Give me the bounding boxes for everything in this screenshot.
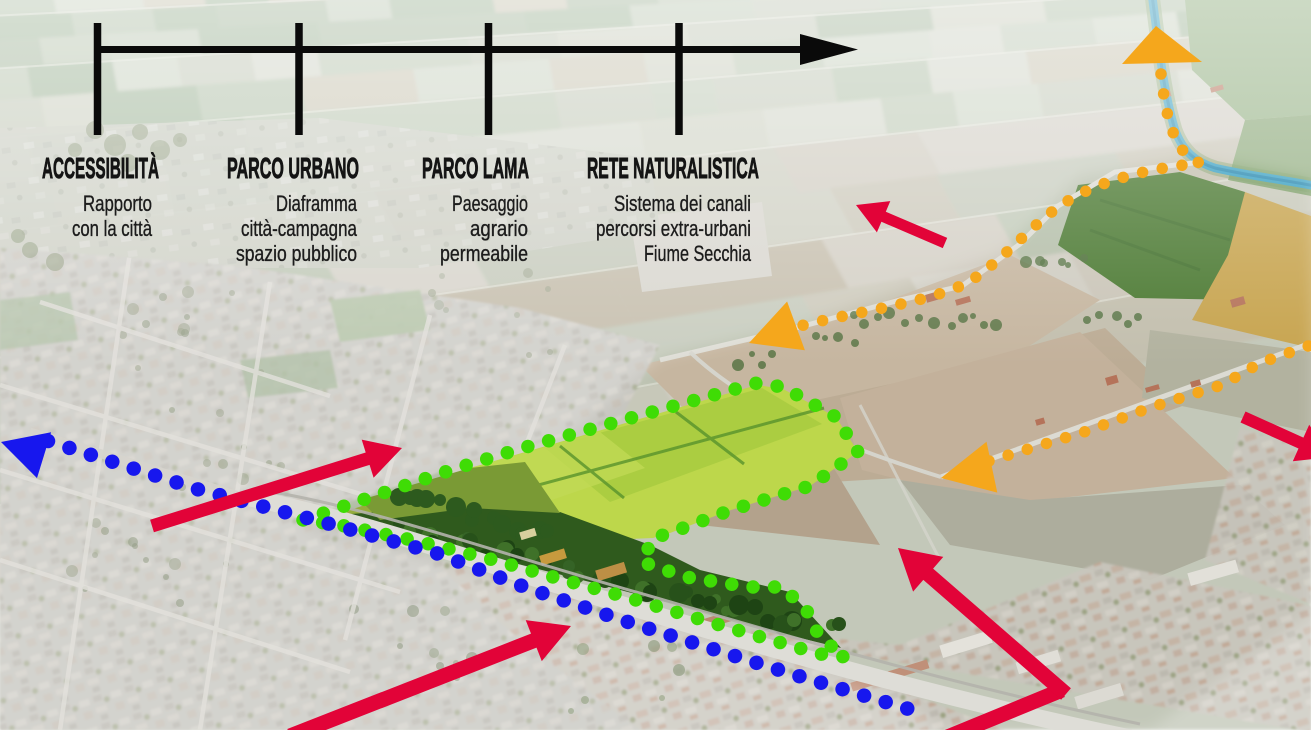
svg-text:RETE NATURALISTICA: RETE NATURALISTICA bbox=[587, 153, 759, 185]
svg-text:agrario: agrario bbox=[470, 216, 528, 241]
svg-text:Fiume Secchia: Fiume Secchia bbox=[644, 241, 752, 266]
svg-text:PARCO LAMA: PARCO LAMA bbox=[422, 153, 529, 185]
svg-text:Rapporto: Rapporto bbox=[83, 191, 152, 216]
svg-text:percorsi extra-urbani: percorsi extra-urbani bbox=[596, 216, 751, 241]
svg-text:spazio pubblico: spazio pubblico bbox=[236, 241, 357, 266]
svg-text:Diaframma: Diaframma bbox=[276, 191, 358, 216]
svg-text:Sistema dei canali: Sistema dei canali bbox=[614, 191, 751, 216]
svg-text:città-campagna: città-campagna bbox=[241, 216, 358, 241]
svg-text:PARCO URBANO: PARCO URBANO bbox=[227, 153, 359, 185]
svg-text:ACCESSIBILITÀ: ACCESSIBILITÀ bbox=[42, 151, 159, 185]
svg-text:con la città: con la città bbox=[72, 216, 153, 241]
svg-text:Paesaggio: Paesaggio bbox=[452, 191, 528, 216]
svg-text:permeabile: permeabile bbox=[440, 241, 528, 266]
